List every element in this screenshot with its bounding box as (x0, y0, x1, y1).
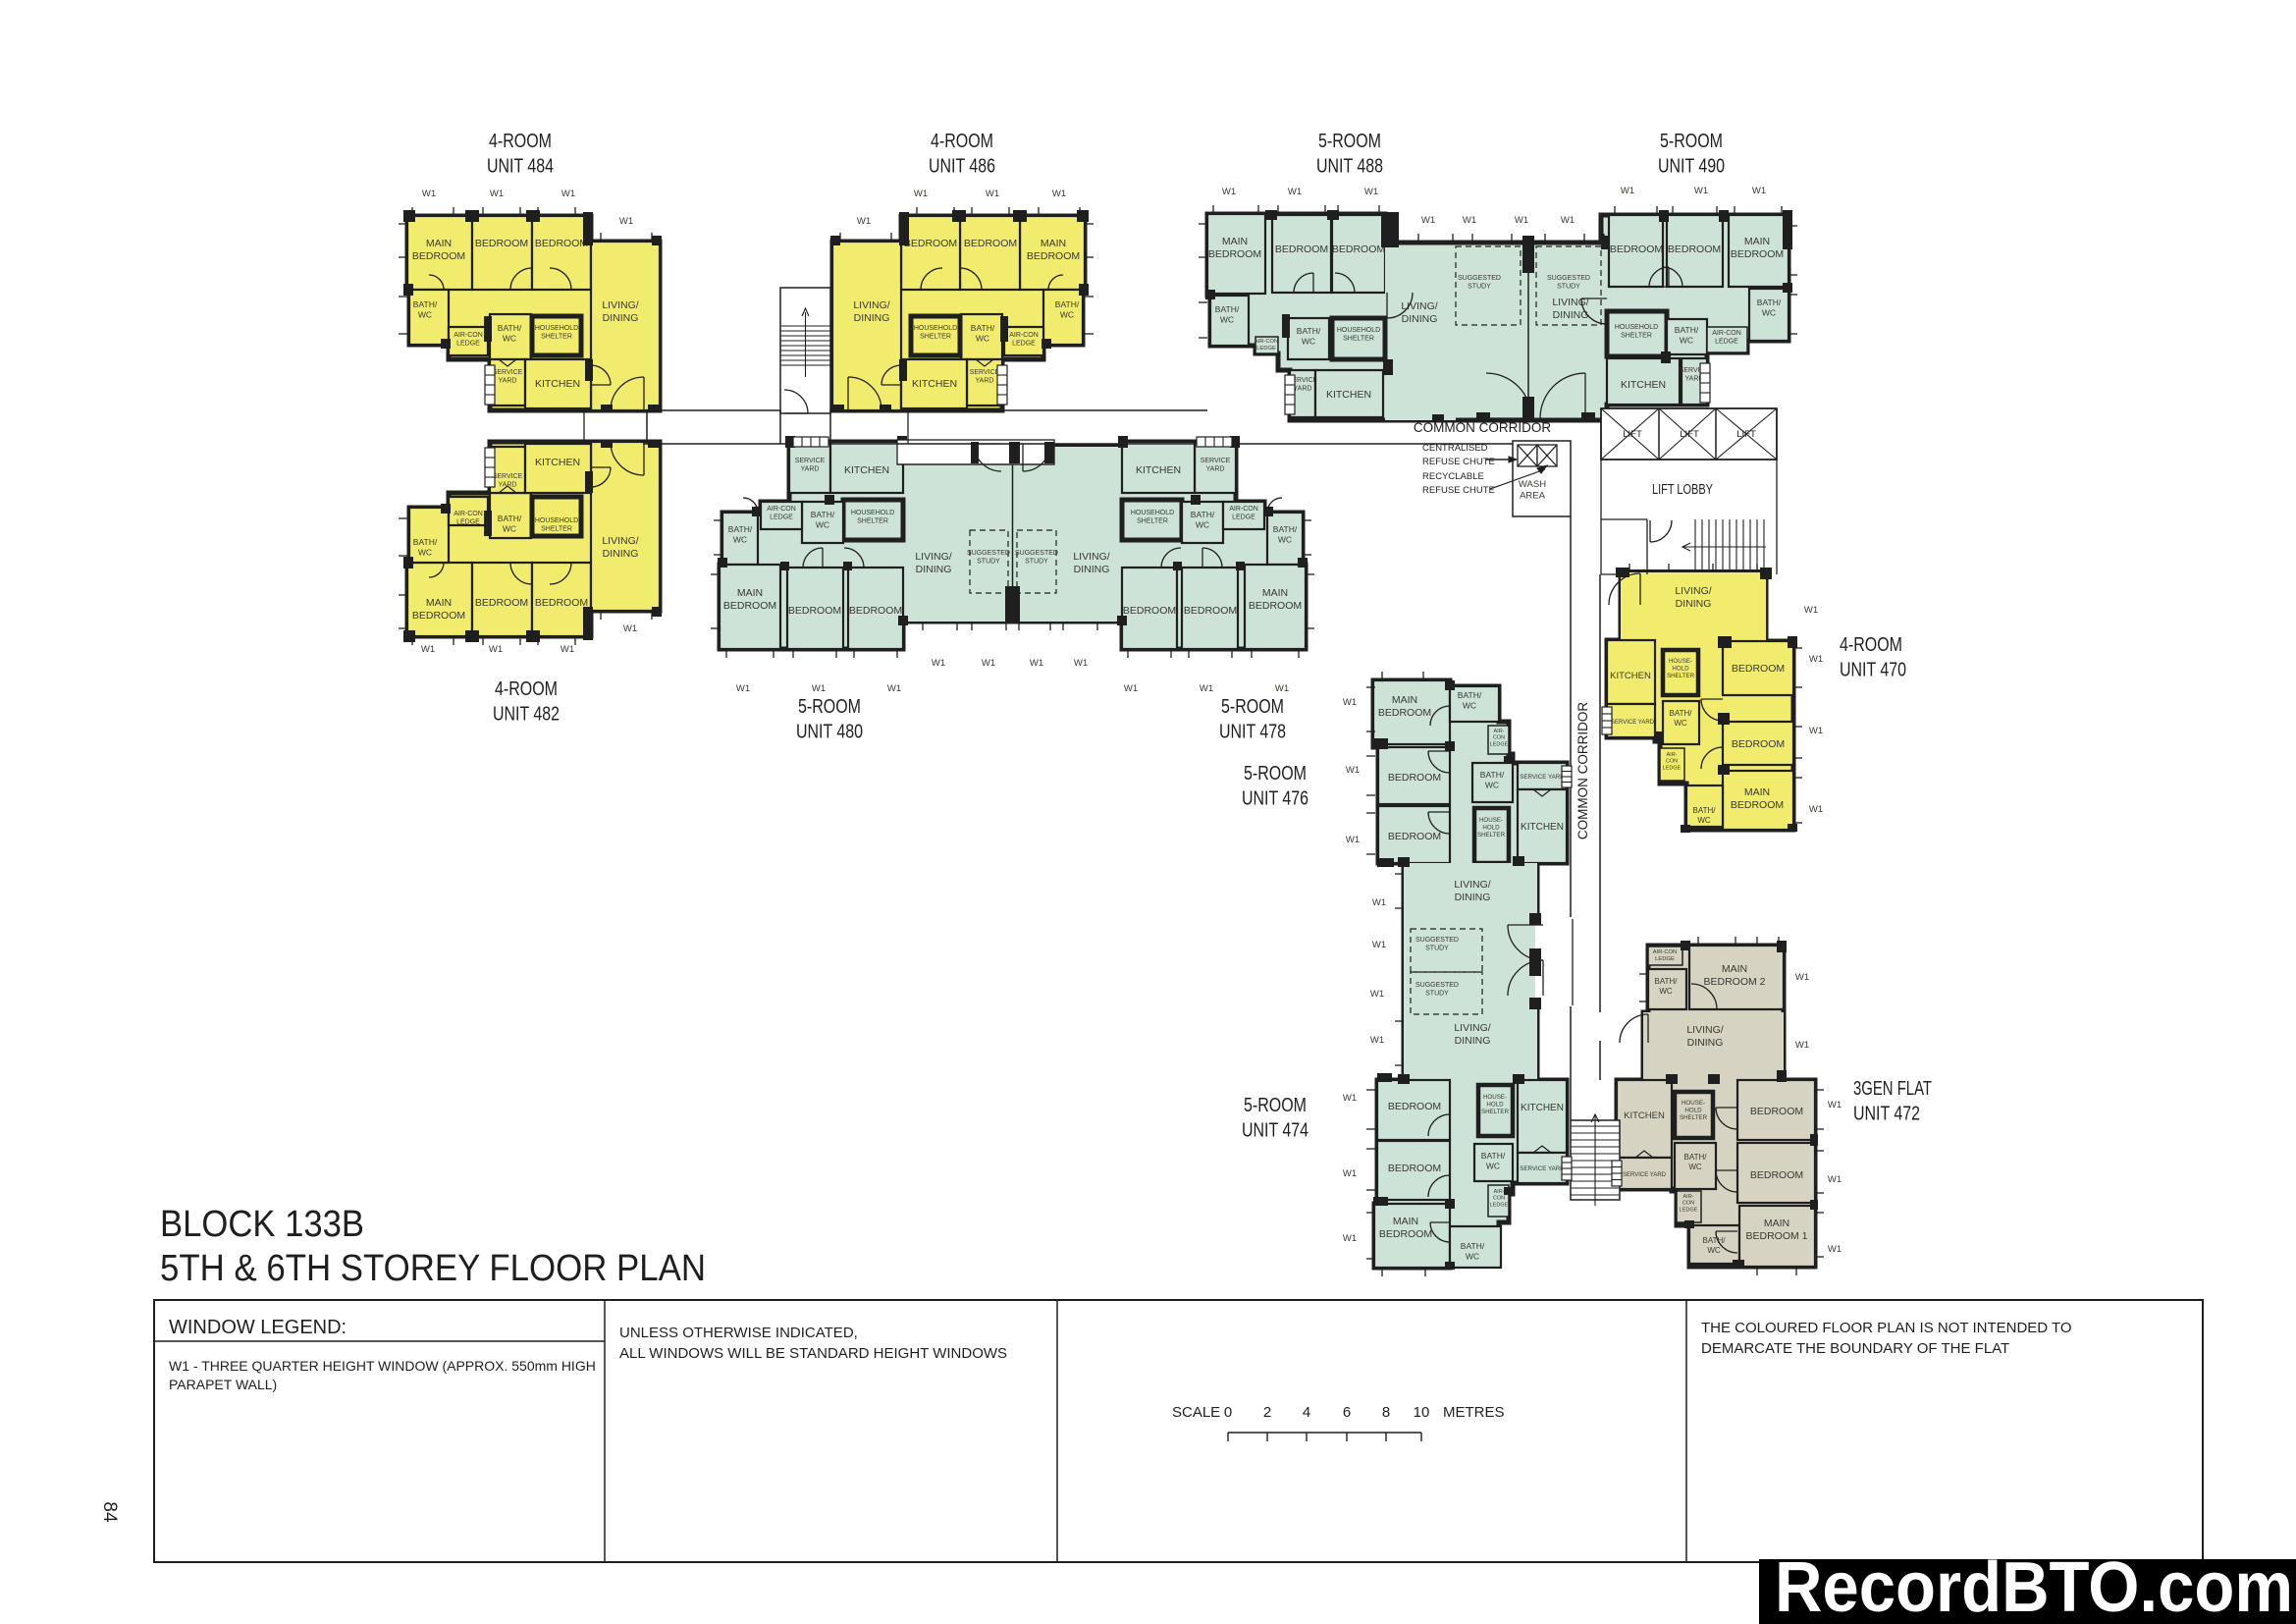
svg-text:DINING: DINING (854, 312, 890, 324)
svg-text:KITCHEN: KITCHEN (1326, 389, 1371, 401)
svg-text:MAIN: MAIN (1744, 786, 1770, 798)
svg-text:DINING: DINING (603, 548, 639, 560)
svg-text:LEDGE: LEDGE (456, 519, 480, 526)
svg-text:W1: W1 (887, 683, 901, 694)
svg-text:STUDY: STUDY (1468, 284, 1491, 291)
svg-text:HOUSEHOLD: HOUSEHOLD (914, 325, 957, 332)
svg-text:LEDGE: LEDGE (1680, 1207, 1698, 1213)
svg-text:BEDROOM: BEDROOM (1731, 799, 1784, 811)
svg-text:LIVING/: LIVING/ (1454, 1022, 1490, 1034)
svg-text:BEDROOM: BEDROOM (1750, 1106, 1803, 1117)
svg-text:W1: W1 (1421, 215, 1435, 226)
svg-text:W1: W1 (1828, 1100, 1842, 1110)
svg-text:KITCHEN: KITCHEN (535, 378, 580, 390)
svg-text:BATH/: BATH/ (811, 510, 835, 519)
svg-text:W1: W1 (422, 189, 436, 199)
svg-text:YARD: YARD (976, 378, 994, 385)
svg-text:BATH/: BATH/ (1297, 326, 1321, 336)
svg-text:LIVING/: LIVING/ (1675, 585, 1711, 597)
svg-text:BATH/: BATH/ (1693, 806, 1717, 815)
svg-text:LIVING/: LIVING/ (1073, 551, 1109, 563)
svg-text:HOUSE-: HOUSE- (1479, 817, 1503, 824)
svg-text:BEDROOM: BEDROOM (1732, 663, 1785, 675)
svg-text:KITCHEN: KITCHEN (844, 464, 889, 476)
svg-text:SERVICE YARD: SERVICE YARD (1520, 774, 1565, 781)
svg-text:YARD: YARD (499, 378, 517, 385)
svg-text:BEDROOM: BEDROOM (1732, 738, 1785, 750)
svg-text:UNIT 470: UNIT 470 (1840, 659, 1906, 681)
svg-text:UNIT 476: UNIT 476 (1242, 787, 1308, 810)
svg-text:4-ROOM: 4-ROOM (489, 130, 552, 152)
svg-text:STUDY: STUDY (1557, 284, 1580, 291)
svg-text:SHELTER: SHELTER (857, 518, 888, 525)
svg-text:BATH/: BATH/ (498, 514, 522, 523)
svg-text:84: 84 (99, 1501, 120, 1523)
svg-text:KITCHEN: KITCHEN (912, 378, 957, 390)
svg-text:SHELTER: SHELTER (1343, 336, 1374, 343)
svg-text:LIFT LOBBY: LIFT LOBBY (1652, 482, 1713, 498)
svg-text:W1: W1 (932, 658, 945, 669)
svg-text:UNIT 486: UNIT 486 (929, 155, 995, 178)
svg-text:CON: CON (1493, 1196, 1505, 1202)
svg-text:W1: W1 (1372, 897, 1386, 908)
svg-text:SERVICE YARD: SERVICE YARD (1623, 1172, 1667, 1178)
svg-text:BATH/: BATH/ (1191, 510, 1215, 519)
svg-text:HOUSE-: HOUSE- (1483, 1094, 1507, 1101)
svg-text:BEDROOM: BEDROOM (475, 238, 528, 249)
svg-text:CON: CON (1493, 735, 1505, 741)
svg-text:W1: W1 (421, 644, 435, 655)
svg-text:8: 8 (1382, 1404, 1390, 1421)
svg-text:WC: WC (1680, 335, 1693, 345)
svg-text:REFUSE CHUTE: REFUSE CHUTE (1422, 457, 1495, 467)
svg-text:SUGGESTED: SUGGESTED (1547, 275, 1590, 282)
svg-text:W1: W1 (1804, 605, 1818, 616)
svg-text:W1: W1 (1222, 187, 1236, 197)
svg-text:WC: WC (1697, 816, 1711, 825)
svg-text:LIVING/: LIVING/ (602, 535, 638, 547)
svg-text:BEDROOM: BEDROOM (1388, 1163, 1441, 1174)
svg-text:KITCHEN: KITCHEN (1521, 822, 1564, 833)
svg-text:BEDROOM: BEDROOM (904, 238, 957, 249)
svg-text:SERVICE: SERVICE (493, 473, 523, 480)
svg-text:WC: WC (1196, 519, 1209, 529)
svg-text:YARD: YARD (1294, 386, 1312, 393)
svg-text:BLOCK 133B: BLOCK 133B (160, 1204, 364, 1245)
svg-text:MAIN: MAIN (1393, 1216, 1418, 1227)
svg-text:4-ROOM: 4-ROOM (1840, 633, 1902, 656)
svg-text:AIR-CON: AIR-CON (1009, 332, 1039, 339)
svg-text:DEMARCATE THE BOUNDARY OF THE: DEMARCATE THE BOUNDARY OF THE FLAT (1701, 1340, 2009, 1357)
svg-text:WC: WC (503, 333, 516, 343)
svg-text:AIR-CON: AIR-CON (454, 511, 483, 517)
svg-text:W1: W1 (1343, 697, 1357, 708)
svg-text:STUDY: STUDY (1425, 991, 1449, 998)
svg-text:HOUSE-: HOUSE- (1682, 1100, 1705, 1107)
svg-text:WC: WC (976, 333, 989, 343)
svg-text:SHELTER: SHELTER (1621, 333, 1652, 340)
svg-text:STUDY: STUDY (1425, 946, 1449, 952)
svg-text:SHELTER: SHELTER (1667, 673, 1695, 679)
svg-text:MAIN: MAIN (1722, 963, 1747, 975)
svg-text:W1: W1 (736, 683, 750, 694)
svg-text:DINING: DINING (603, 312, 639, 324)
svg-text:BATH/: BATH/ (1655, 977, 1679, 986)
svg-text:BEDROOM: BEDROOM (412, 250, 465, 262)
svg-text:METRES: METRES (1443, 1404, 1505, 1421)
svg-text:5-ROOM: 5-ROOM (798, 695, 861, 718)
svg-text:4-ROOM: 4-ROOM (931, 130, 993, 152)
svg-text:WC: WC (733, 534, 747, 544)
svg-text:COMMON CORRIDOR: COMMON CORRIDOR (1414, 420, 1551, 435)
svg-text:WINDOW LEGEND:: WINDOW LEGEND: (169, 1317, 347, 1338)
svg-text:SHELTER: SHELTER (1680, 1114, 1708, 1121)
svg-text:DINING: DINING (916, 564, 952, 575)
svg-text:UNIT 478: UNIT 478 (1219, 721, 1286, 743)
svg-text:MAIN: MAIN (1744, 236, 1770, 247)
svg-text:LEDGE: LEDGE (1256, 346, 1276, 352)
svg-text:BATH/: BATH/ (1684, 1153, 1708, 1162)
svg-text:LIFT: LIFT (1680, 429, 1699, 440)
svg-text:KITCHEN: KITCHEN (535, 457, 580, 468)
svg-text:MAIN: MAIN (1764, 1218, 1789, 1229)
svg-text:CENTRALISED: CENTRALISED (1422, 443, 1488, 454)
svg-text:WC: WC (1762, 307, 1776, 317)
svg-text:W1: W1 (1561, 215, 1575, 226)
svg-text:BEDROOM: BEDROOM (412, 610, 465, 622)
svg-text:WC: WC (1688, 1163, 1702, 1171)
svg-text:BEDROOM: BEDROOM (1388, 831, 1441, 842)
svg-text:BEDROOM: BEDROOM (1731, 248, 1784, 260)
svg-text:DINING: DINING (1455, 892, 1491, 903)
svg-text:BATH/: BATH/ (1055, 299, 1080, 309)
svg-text:W1: W1 (1809, 654, 1823, 665)
svg-text:W1: W1 (1346, 765, 1360, 776)
svg-text:YARD: YARD (499, 482, 517, 489)
svg-text:KITCHEN: KITCHEN (1624, 1110, 1665, 1121)
svg-text:5-ROOM: 5-ROOM (1318, 130, 1381, 152)
svg-text:W1: W1 (1515, 215, 1528, 226)
svg-text:W1: W1 (623, 623, 637, 634)
svg-text:3GEN FLAT: 3GEN FLAT (1853, 1077, 1932, 1100)
svg-text:BATH/: BATH/ (1480, 770, 1505, 780)
svg-text:THE COLOURED FLOOR PLAN IS NOT: THE COLOURED FLOOR PLAN IS NOT INTENDED … (1701, 1320, 2072, 1336)
svg-text:W1: W1 (914, 189, 928, 199)
svg-text:BATH/: BATH/ (1675, 325, 1699, 335)
svg-text:W1: W1 (1795, 1040, 1809, 1051)
svg-text:MAIN: MAIN (1392, 694, 1417, 706)
svg-text:SUGGESTED: SUGGESTED (1458, 275, 1501, 282)
svg-text:HOUSEHOLD: HOUSEHOLD (1615, 324, 1658, 331)
svg-text:BEDROOM: BEDROOM (1123, 605, 1176, 617)
svg-text:HOUSEHOLD: HOUSEHOLD (1131, 510, 1174, 516)
svg-text:BEDROOM: BEDROOM (1275, 244, 1328, 255)
svg-text:BEDROOM: BEDROOM (535, 597, 588, 609)
svg-text:W1: W1 (1364, 187, 1378, 197)
svg-text:BEDROOM: BEDROOM (1668, 244, 1721, 255)
svg-text:W1: W1 (1828, 1244, 1842, 1255)
svg-text:BATH/: BATH/ (1458, 690, 1482, 700)
svg-text:BEDROOM: BEDROOM (1750, 1169, 1803, 1181)
svg-text:W1: W1 (812, 683, 826, 694)
svg-text:BEDROOM: BEDROOM (1184, 605, 1237, 617)
svg-text:SUGGESTED: SUGGESTED (1415, 982, 1459, 989)
svg-text:WC: WC (1060, 309, 1074, 319)
svg-text:W1: W1 (1370, 1035, 1384, 1046)
svg-text:LEDGE: LEDGE (1663, 765, 1682, 771)
svg-text:SCALE: SCALE (1172, 1404, 1220, 1421)
svg-text:BATH/: BATH/ (413, 299, 438, 309)
svg-text:HOUSE-: HOUSE- (1669, 658, 1692, 665)
svg-text:AIR-CON: AIR-CON (1229, 506, 1258, 513)
svg-text:KITCHEN: KITCHEN (1136, 464, 1181, 476)
svg-text:W1: W1 (1795, 972, 1809, 983)
svg-text:UNIT 484: UNIT 484 (487, 155, 554, 178)
svg-text:HOLD: HOLD (1486, 1102, 1504, 1109)
svg-text:SHELTER: SHELTER (541, 526, 572, 533)
svg-text:WASH: WASH (1519, 479, 1546, 490)
svg-text:10: 10 (1414, 1404, 1430, 1421)
svg-text:AIR-: AIR- (1494, 729, 1505, 734)
svg-text:AIR-CON: AIR-CON (1255, 339, 1278, 345)
svg-text:AIR-CON: AIR-CON (454, 332, 483, 339)
svg-text:UNLESS OTHERWISE INDICATED,: UNLESS OTHERWISE INDICATED, (619, 1325, 858, 1341)
svg-text:UNIT 480: UNIT 480 (796, 721, 863, 743)
svg-text:DINING: DINING (1687, 1037, 1724, 1049)
svg-text:UNIT 490: UNIT 490 (1658, 155, 1725, 178)
svg-text:HOUSEHOLD: HOUSEHOLD (1337, 327, 1380, 334)
svg-text:W1: W1 (1346, 835, 1360, 845)
svg-text:WC: WC (1707, 1246, 1721, 1255)
svg-text:WC: WC (1302, 336, 1315, 346)
svg-text:6: 6 (1343, 1404, 1351, 1421)
svg-text:W1: W1 (1343, 1168, 1357, 1179)
svg-text:SHELTER: SHELTER (1481, 1109, 1510, 1115)
svg-text:W1: W1 (1463, 215, 1476, 226)
svg-text:W1: W1 (1694, 186, 1708, 196)
svg-text:UNIT 488: UNIT 488 (1316, 155, 1383, 178)
svg-text:AIR-: AIR- (1667, 752, 1678, 758)
svg-text:DINING: DINING (1074, 564, 1110, 575)
svg-text:SERVICE: SERVICE (795, 458, 826, 464)
svg-text:4-ROOM: 4-ROOM (495, 677, 558, 700)
svg-text:AIR-: AIR- (1683, 1194, 1694, 1200)
svg-text:LIVING/: LIVING/ (602, 299, 638, 311)
svg-text:LIVING/: LIVING/ (1686, 1024, 1723, 1036)
svg-text:LIVING/: LIVING/ (1454, 879, 1490, 891)
svg-text:STUDY: STUDY (1025, 559, 1048, 566)
svg-text:W1: W1 (561, 189, 575, 199)
svg-text:LEDGE: LEDGE (1655, 956, 1675, 962)
svg-text:2: 2 (1263, 1404, 1271, 1421)
svg-text:BEDROOM: BEDROOM (964, 238, 1017, 249)
svg-text:UNIT 482: UNIT 482 (493, 703, 560, 726)
svg-text:W1: W1 (1200, 683, 1213, 694)
svg-text:BEDROOM: BEDROOM (1027, 250, 1080, 262)
svg-text:BATH/: BATH/ (1703, 1236, 1727, 1245)
svg-text:BEDROOM: BEDROOM (788, 605, 841, 617)
svg-text:BATH/: BATH/ (971, 323, 995, 333)
svg-text:ALL WINDOWS WILL BE STANDARD H: ALL WINDOWS WILL BE STANDARD HEIGHT WIND… (619, 1345, 1007, 1362)
svg-text:BEDROOM: BEDROOM (1208, 248, 1261, 260)
svg-text:WC: WC (1659, 987, 1673, 996)
svg-text:BATH/: BATH/ (413, 537, 438, 547)
svg-text:BATH/: BATH/ (728, 524, 753, 534)
svg-text:SERVICE YARD: SERVICE YARD (1520, 1165, 1565, 1172)
svg-text:HOLD: HOLD (1684, 1108, 1702, 1114)
svg-text:W1: W1 (1343, 1093, 1357, 1104)
svg-text:BATH/: BATH/ (1461, 1241, 1485, 1251)
svg-text:W1: W1 (1343, 1233, 1357, 1244)
svg-text:DINING: DINING (1676, 598, 1712, 610)
svg-text:YARD: YARD (801, 466, 820, 473)
svg-text:W1: W1 (1030, 658, 1043, 669)
svg-text:SERVICE YARD: SERVICE YARD (1611, 720, 1655, 726)
svg-text:5-ROOM: 5-ROOM (1221, 695, 1284, 718)
svg-text:REFUSE CHUTE: REFUSE CHUTE (1422, 485, 1495, 496)
svg-text:SERVICE: SERVICE (1201, 458, 1231, 464)
svg-text:LEDGE: LEDGE (770, 514, 793, 521)
svg-text:SERVICE: SERVICE (493, 369, 523, 376)
svg-text:WC: WC (1278, 534, 1292, 544)
svg-text:BEDROOM: BEDROOM (535, 238, 588, 249)
svg-text:AIR-: AIR- (1494, 1189, 1505, 1195)
svg-text:W1: W1 (1275, 683, 1289, 694)
svg-text:SUGGESTED: SUGGESTED (967, 550, 1010, 557)
svg-text:SERVICE: SERVICE (970, 369, 1000, 376)
svg-text:BEDROOM: BEDROOM (1249, 600, 1302, 612)
svg-text:MAIN: MAIN (1262, 587, 1288, 599)
svg-text:W1: W1 (490, 189, 504, 199)
svg-text:HOUSEHOLD: HOUSEHOLD (535, 325, 578, 332)
svg-text:CON: CON (1682, 1201, 1694, 1207)
svg-text:MAIN: MAIN (426, 238, 452, 249)
svg-text:W1: W1 (982, 658, 995, 669)
svg-text:BEDROOM: BEDROOM (1388, 772, 1441, 784)
svg-text:BEDROOM: BEDROOM (475, 597, 528, 609)
svg-text:W1 - THREE QUARTER HEIGHT WIND: W1 - THREE QUARTER HEIGHT WINDOW (APPROX… (169, 1358, 596, 1374)
svg-text:MAIN: MAIN (737, 587, 763, 599)
svg-text:PARAPET WALL): PARAPET WALL) (169, 1377, 277, 1392)
svg-text:MAIN: MAIN (1041, 238, 1066, 249)
svg-text:4: 4 (1303, 1404, 1310, 1421)
svg-text:YARD: YARD (1206, 466, 1225, 473)
svg-text:BEDROOM: BEDROOM (1610, 244, 1663, 255)
svg-text:W1: W1 (1621, 186, 1634, 196)
svg-text:BEDROOM: BEDROOM (723, 600, 776, 612)
svg-text:LEDGE: LEDGE (1232, 514, 1255, 521)
svg-text:LEDGE: LEDGE (1490, 1202, 1509, 1208)
svg-text:HOLD: HOLD (1672, 666, 1689, 673)
svg-text:WC: WC (1466, 1251, 1479, 1261)
svg-text:LIFT: LIFT (1623, 429, 1642, 440)
svg-text:AIR-CON: AIR-CON (767, 506, 796, 513)
svg-text:UNIT 474: UNIT 474 (1242, 1119, 1308, 1142)
svg-text:DINING: DINING (1402, 313, 1438, 325)
svg-text:W1: W1 (1288, 187, 1302, 197)
svg-text:5-ROOM: 5-ROOM (1244, 1094, 1307, 1116)
svg-text:HOUSEHOLD: HOUSEHOLD (851, 510, 894, 516)
svg-text:0: 0 (1224, 1404, 1232, 1421)
svg-text:LIVING/: LIVING/ (1401, 300, 1437, 312)
svg-text:BEDROOM: BEDROOM (1332, 244, 1385, 255)
svg-text:WC: WC (1486, 1161, 1500, 1170)
svg-text:5-ROOM: 5-ROOM (1244, 762, 1307, 785)
svg-text:LIVING/: LIVING/ (915, 551, 951, 563)
svg-text:W1: W1 (1370, 989, 1384, 1000)
svg-text:MAIN: MAIN (1222, 236, 1248, 247)
svg-text:CON: CON (1666, 759, 1678, 765)
svg-text:WC: WC (1463, 700, 1476, 710)
svg-text:KITCHEN: KITCHEN (1521, 1103, 1564, 1113)
svg-text:SHELTER: SHELTER (541, 334, 572, 341)
svg-text:HOLD: HOLD (1482, 825, 1500, 832)
svg-text:WC: WC (418, 547, 432, 557)
svg-text:BATH/: BATH/ (1481, 1151, 1506, 1161)
svg-text:AREA: AREA (1520, 491, 1546, 502)
svg-text:HOUSEHOLD: HOUSEHOLD (535, 517, 578, 524)
svg-text:W1: W1 (986, 189, 999, 199)
svg-text:W1: W1 (1372, 940, 1386, 950)
svg-text:BEDROOM: BEDROOM (1378, 707, 1431, 719)
svg-text:W1: W1 (1124, 683, 1138, 694)
svg-text:SHELTER: SHELTER (920, 334, 951, 341)
svg-text:DINING: DINING (1455, 1035, 1491, 1047)
svg-text:BATH/: BATH/ (1757, 298, 1782, 307)
svg-text:KITCHEN: KITCHEN (1610, 671, 1651, 681)
svg-text:BEDROOM: BEDROOM (1388, 1101, 1441, 1112)
svg-text:BATH/: BATH/ (1670, 709, 1693, 718)
svg-text:WC: WC (503, 523, 516, 533)
svg-text:LEDGE: LEDGE (1715, 339, 1738, 346)
svg-text:WC: WC (1674, 719, 1687, 728)
svg-text:KITCHEN: KITCHEN (1621, 379, 1666, 391)
svg-text:RECYCLABLE: RECYCLABLE (1422, 471, 1484, 482)
svg-text:LEDGE: LEDGE (456, 341, 480, 348)
svg-text:W1: W1 (1052, 189, 1066, 199)
svg-text:W1: W1 (1809, 726, 1823, 736)
svg-text:COMMON CORRIDOR: COMMON CORRIDOR (1575, 702, 1590, 839)
svg-text:W1: W1 (619, 216, 633, 227)
svg-text:LEDGE: LEDGE (1490, 741, 1509, 747)
svg-text:W1: W1 (1074, 658, 1088, 669)
svg-text:W1: W1 (1809, 804, 1823, 815)
svg-text:WC: WC (1485, 780, 1499, 789)
svg-text:W1: W1 (1828, 1174, 1842, 1185)
svg-text:RecordBTO.com: RecordBTO.com (1775, 1548, 2293, 1624)
svg-text:SUGGESTED: SUGGESTED (1415, 937, 1459, 944)
svg-text:W1: W1 (489, 644, 503, 655)
svg-text:BEDROOM: BEDROOM (1379, 1228, 1432, 1240)
svg-text:BATH/: BATH/ (1215, 304, 1240, 314)
svg-text:LIFT: LIFT (1736, 429, 1756, 440)
svg-text:SHELTER: SHELTER (1477, 832, 1506, 839)
svg-text:STUDY: STUDY (977, 559, 1000, 566)
svg-text:LIVING/: LIVING/ (853, 299, 889, 311)
svg-text:BATH/: BATH/ (498, 323, 522, 333)
svg-text:BATH/: BATH/ (1273, 524, 1298, 534)
svg-text:WC: WC (1220, 314, 1234, 324)
svg-text:W1: W1 (1752, 186, 1766, 196)
svg-text:BEDROOM 1: BEDROOM 1 (1745, 1230, 1807, 1242)
svg-text:W1: W1 (857, 216, 871, 227)
svg-text:W1: W1 (561, 644, 574, 655)
svg-text:AIR-CON: AIR-CON (1712, 330, 1741, 337)
svg-text:DINING: DINING (1553, 309, 1589, 321)
svg-text:WC: WC (816, 519, 829, 529)
svg-text:BEDROOM 2: BEDROOM 2 (1703, 976, 1765, 988)
svg-text:WC: WC (418, 309, 432, 319)
